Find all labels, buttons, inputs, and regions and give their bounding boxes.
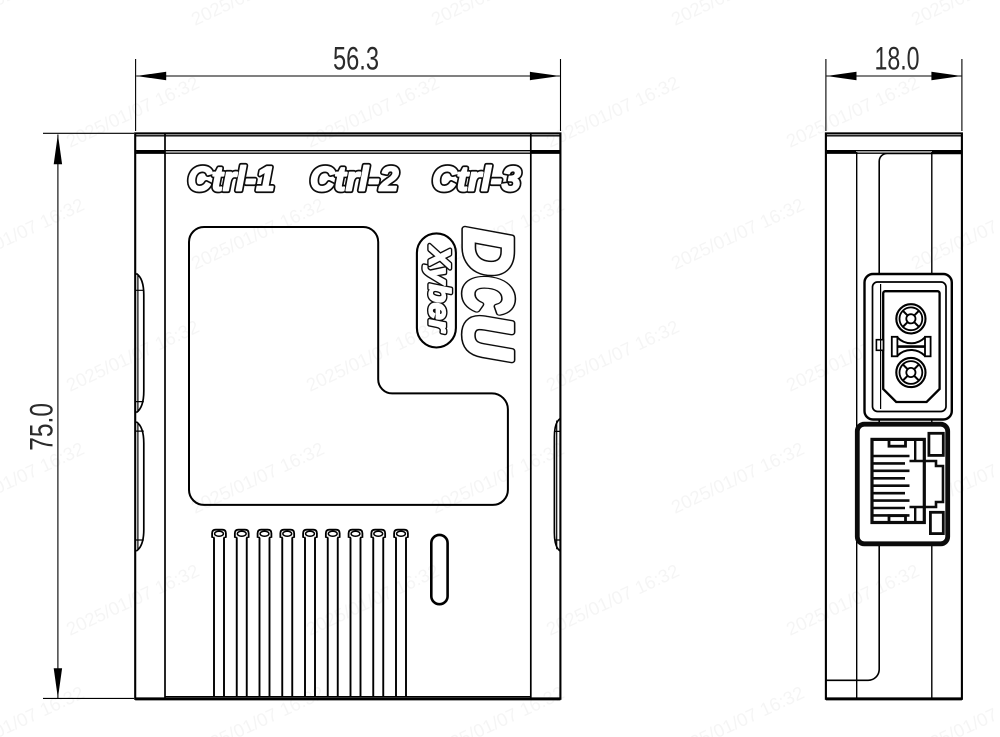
svg-text:Ctrl-2: Ctrl-2 <box>310 161 399 199</box>
svg-text:18.0: 18.0 <box>874 41 919 77</box>
svg-text:75.0: 75.0 <box>24 403 60 451</box>
svg-text:D: D <box>450 228 525 275</box>
svg-text:Ctrl-3: Ctrl-3 <box>432 161 521 199</box>
svg-text:56.3: 56.3 <box>333 41 379 77</box>
svg-text:C: C <box>450 276 525 313</box>
svg-text:U: U <box>449 315 524 361</box>
svg-text:Ctrl-1: Ctrl-1 <box>188 161 275 199</box>
